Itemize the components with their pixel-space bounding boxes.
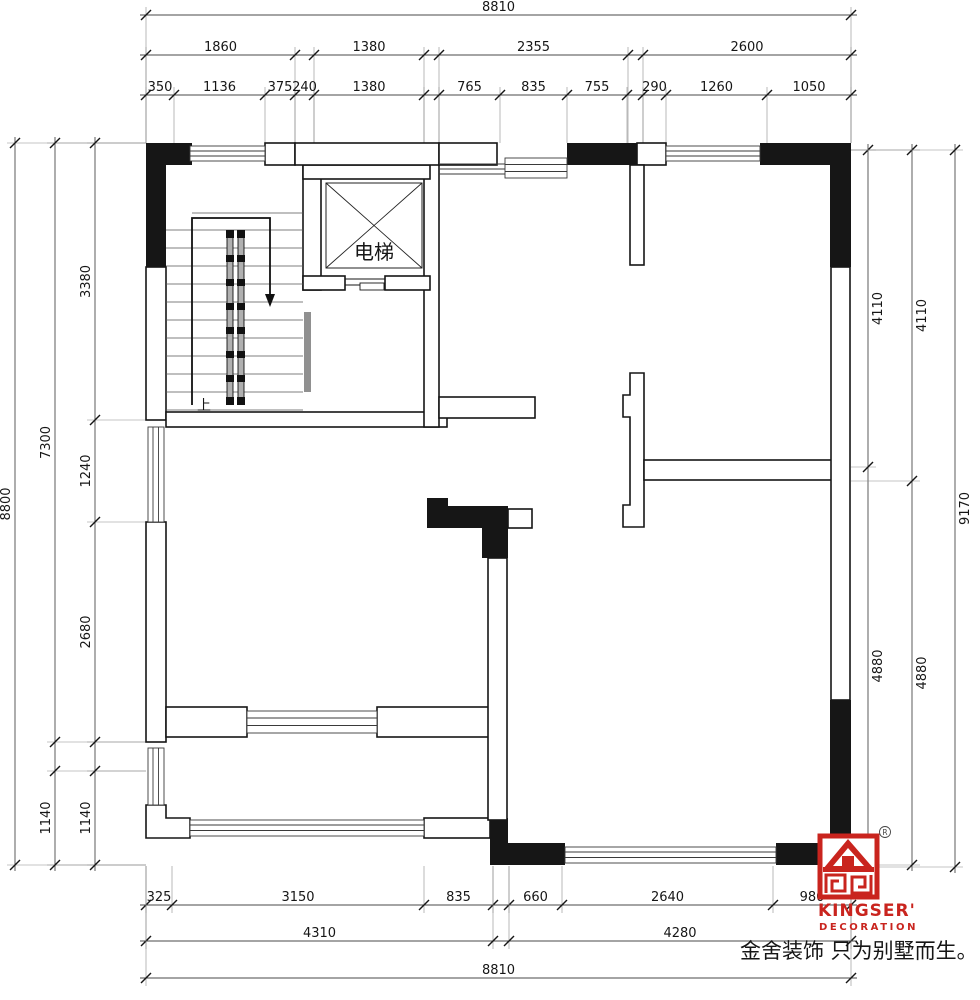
stair-treads	[166, 213, 303, 410]
kingser-logo: R KINGSER' DECORATION	[818, 827, 918, 934]
logo-roof-ridge	[842, 856, 854, 866]
window-top-2	[666, 146, 760, 161]
stair-direction-arrow	[265, 294, 275, 307]
window-top-1	[190, 146, 265, 161]
dimension-value: 2640	[651, 890, 684, 905]
room-divider-wall	[488, 558, 507, 820]
dimension-value: 3150	[281, 890, 314, 905]
dimension-value: 1260	[700, 80, 733, 95]
dimension-value: 765	[457, 80, 482, 95]
dimension-value: 4110	[915, 299, 930, 332]
window-bottom-2	[565, 847, 776, 863]
dimension-value: 350	[148, 80, 173, 95]
window-bottom-1	[190, 820, 424, 836]
dimension-value: 2680	[79, 615, 94, 648]
elevator-label: 电梯	[354, 240, 394, 264]
corner-step	[146, 805, 190, 838]
staircase: 上	[166, 213, 311, 414]
dimension-value: 1380	[352, 40, 385, 55]
dimension-value: 4310	[303, 926, 336, 941]
window-left-2	[148, 748, 164, 805]
dimension-value: 325	[147, 890, 172, 905]
dimension-value: 660	[523, 890, 548, 905]
dimension-value: 835	[446, 890, 471, 905]
window-left-1	[148, 427, 164, 522]
bedroom-wall	[623, 373, 644, 527]
brand-name: KINGSER'	[818, 901, 916, 921]
dimension-value: 2600	[730, 40, 763, 55]
dimension-value: 4110	[871, 292, 886, 325]
stair-wall-strip	[304, 312, 311, 392]
dimension-value: 8810	[482, 963, 515, 978]
window-interior	[247, 711, 377, 733]
dimension-value: 835	[521, 80, 546, 95]
hall-wall	[424, 160, 439, 427]
dimension-value: 4880	[871, 649, 886, 682]
dimension-value: 8810	[482, 0, 515, 15]
dimension-value: 1136	[203, 80, 236, 95]
dimension-value: 1240	[79, 454, 94, 487]
left-wall	[146, 267, 166, 420]
dimension-value: 1140	[79, 801, 94, 834]
brand-subtitle: DECORATION	[819, 922, 918, 933]
dimension-value: 8800	[0, 487, 14, 520]
dimension-value: 375	[268, 80, 293, 95]
dimension-value: 290	[642, 80, 667, 95]
dimension-value: 755	[585, 80, 610, 95]
floor-plan-canvas: 8810186013802355260035011363752401380765…	[0, 0, 980, 1000]
elevator-door	[345, 279, 385, 290]
up-label: 上	[197, 398, 211, 414]
walls	[146, 143, 851, 865]
dimension-value: 7300	[39, 426, 54, 459]
dimension-value: 9170	[958, 492, 973, 525]
dimension-value: 1380	[352, 80, 385, 95]
dimension-value: 240	[292, 80, 317, 95]
entry-pier-wall	[630, 165, 644, 265]
elevator-shaft: 电梯	[326, 183, 422, 268]
dimension-value: 1860	[204, 40, 237, 55]
dimension-value: 1050	[792, 80, 825, 95]
middle-wall	[644, 460, 834, 480]
dimension-value: 1140	[39, 801, 54, 834]
brand-slogan: 金舍装饰 只为别墅而生。	[740, 939, 978, 963]
registered-r: R	[882, 828, 887, 837]
floor-plan-page: 8810186013802355260035011363752401380765…	[0, 0, 980, 1000]
stair-bottom-wall	[166, 412, 447, 427]
dimension-value: 4880	[915, 656, 930, 689]
dimension-value: 3380	[79, 265, 94, 298]
dimension-value: 4280	[663, 926, 696, 941]
right-wall	[831, 267, 850, 700]
logo-eave-bar	[823, 867, 874, 872]
dimension-value: 2355	[517, 40, 550, 55]
